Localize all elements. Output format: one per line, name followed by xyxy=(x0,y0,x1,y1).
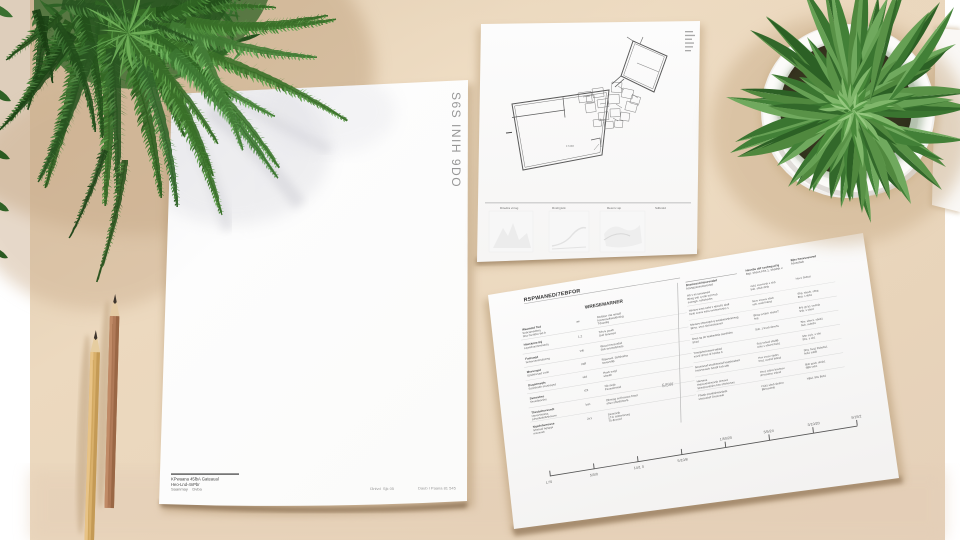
svg-text:Sdbnsld: Sdbnsld xyxy=(655,206,666,210)
svg-text:I3nlvd Sjk 05: I3nlvd Sjk 05 xyxy=(370,486,395,491)
svg-text:Saanmay Dvba: Saanmay Dvba xyxy=(171,487,202,492)
svg-text:bsn: bsn xyxy=(585,402,591,407)
svg-text:r22: r22 xyxy=(584,388,589,393)
svg-text:vkd: vkd xyxy=(582,375,587,380)
svg-text:Drtedra vnrog: Drtedra vnrog xyxy=(500,206,519,210)
svg-text:17n58: 17n58 xyxy=(566,144,574,148)
svg-text:S6S INIH 9DO: S6S INIH 9DO xyxy=(449,92,463,188)
svg-text:vsb: vsb xyxy=(579,348,584,353)
svg-text:1.2: 1.2 xyxy=(578,334,583,339)
svg-text:2v1: 2v1 xyxy=(587,416,593,421)
svg-text:Daub I Paana 81 545: Daub I Paana 81 545 xyxy=(418,485,457,490)
svg-text:Rnshj jkck: Rnshj jkck xyxy=(552,206,566,210)
svg-text:Resnrv wp: Resnrv wp xyxy=(607,206,622,210)
